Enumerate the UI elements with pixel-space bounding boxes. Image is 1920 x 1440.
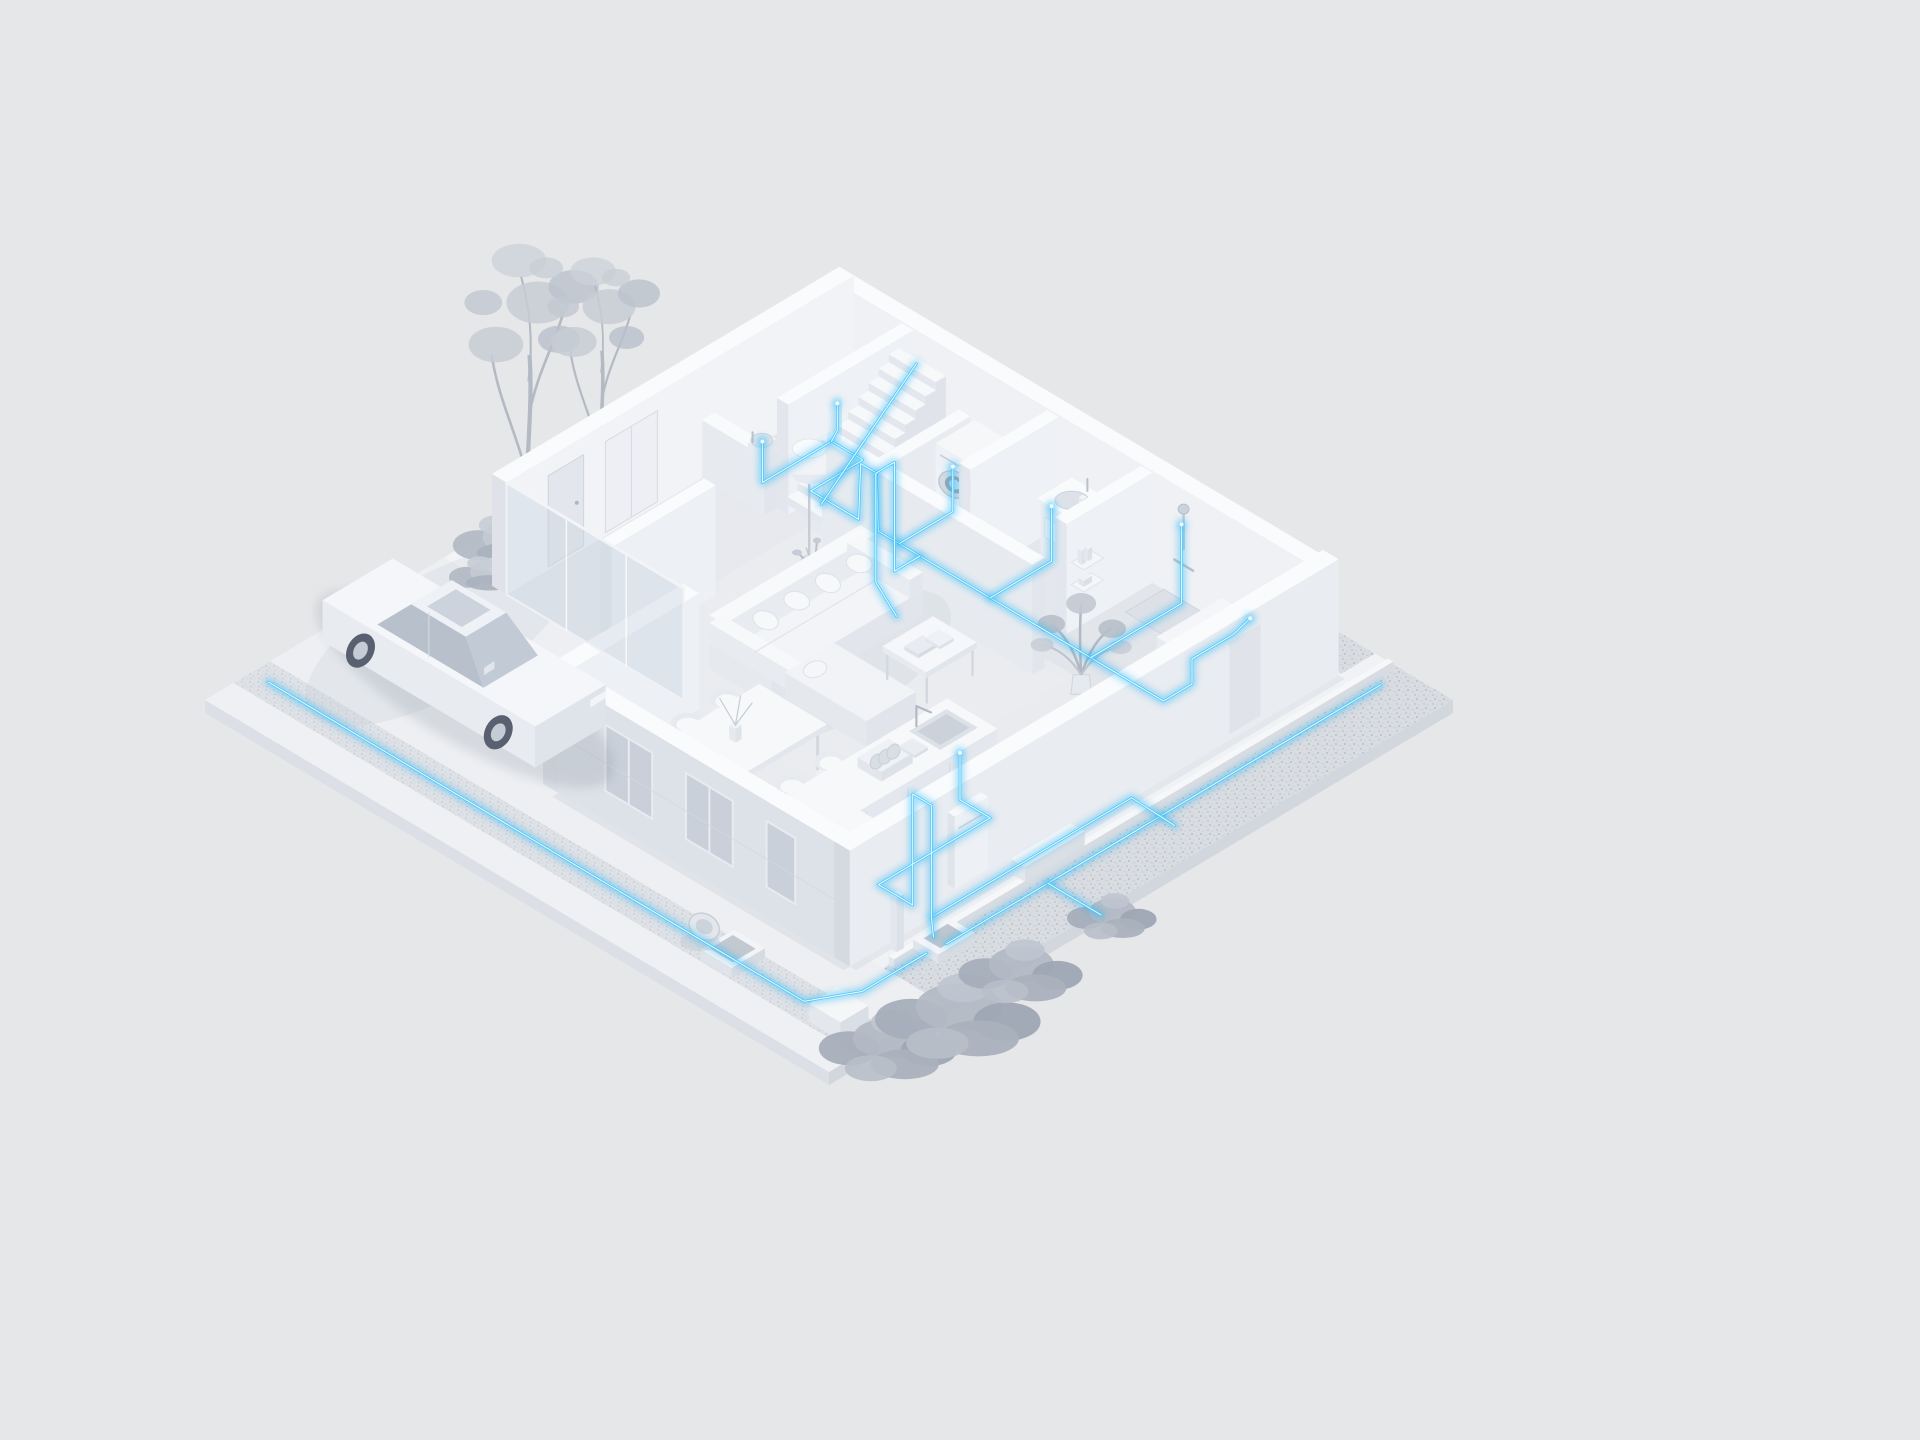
utility-wall-box-face-l [948,812,955,888]
network-node-kitchen-sink [958,751,962,755]
wall-front-right-face-l [834,841,850,966]
wall-wc-stairs-face-l [777,398,788,515]
network-node-vanity [1050,504,1054,508]
shelf-bottle-1-face-l [1078,548,1082,565]
network-node-toilet [835,402,839,406]
network-node-washer [951,465,955,469]
front-right-door-panel [1229,624,1260,735]
scene-render [0,0,1920,1440]
shower-head [1178,504,1189,514]
network-node-wc-basin [761,440,765,444]
wall-back-left-face-l [492,474,507,595]
bollard-face-l [890,895,896,953]
shelf-bottle-2-face-r [1088,547,1092,562]
door-handle [575,501,579,505]
smart-home-render-stage: Monochrome isometric 3D cutaway render o… [0,0,1920,1440]
network-node-bathtub [1248,616,1252,620]
network-node-shower [1180,523,1184,527]
shelf-bottle-2-face-l [1084,547,1088,562]
